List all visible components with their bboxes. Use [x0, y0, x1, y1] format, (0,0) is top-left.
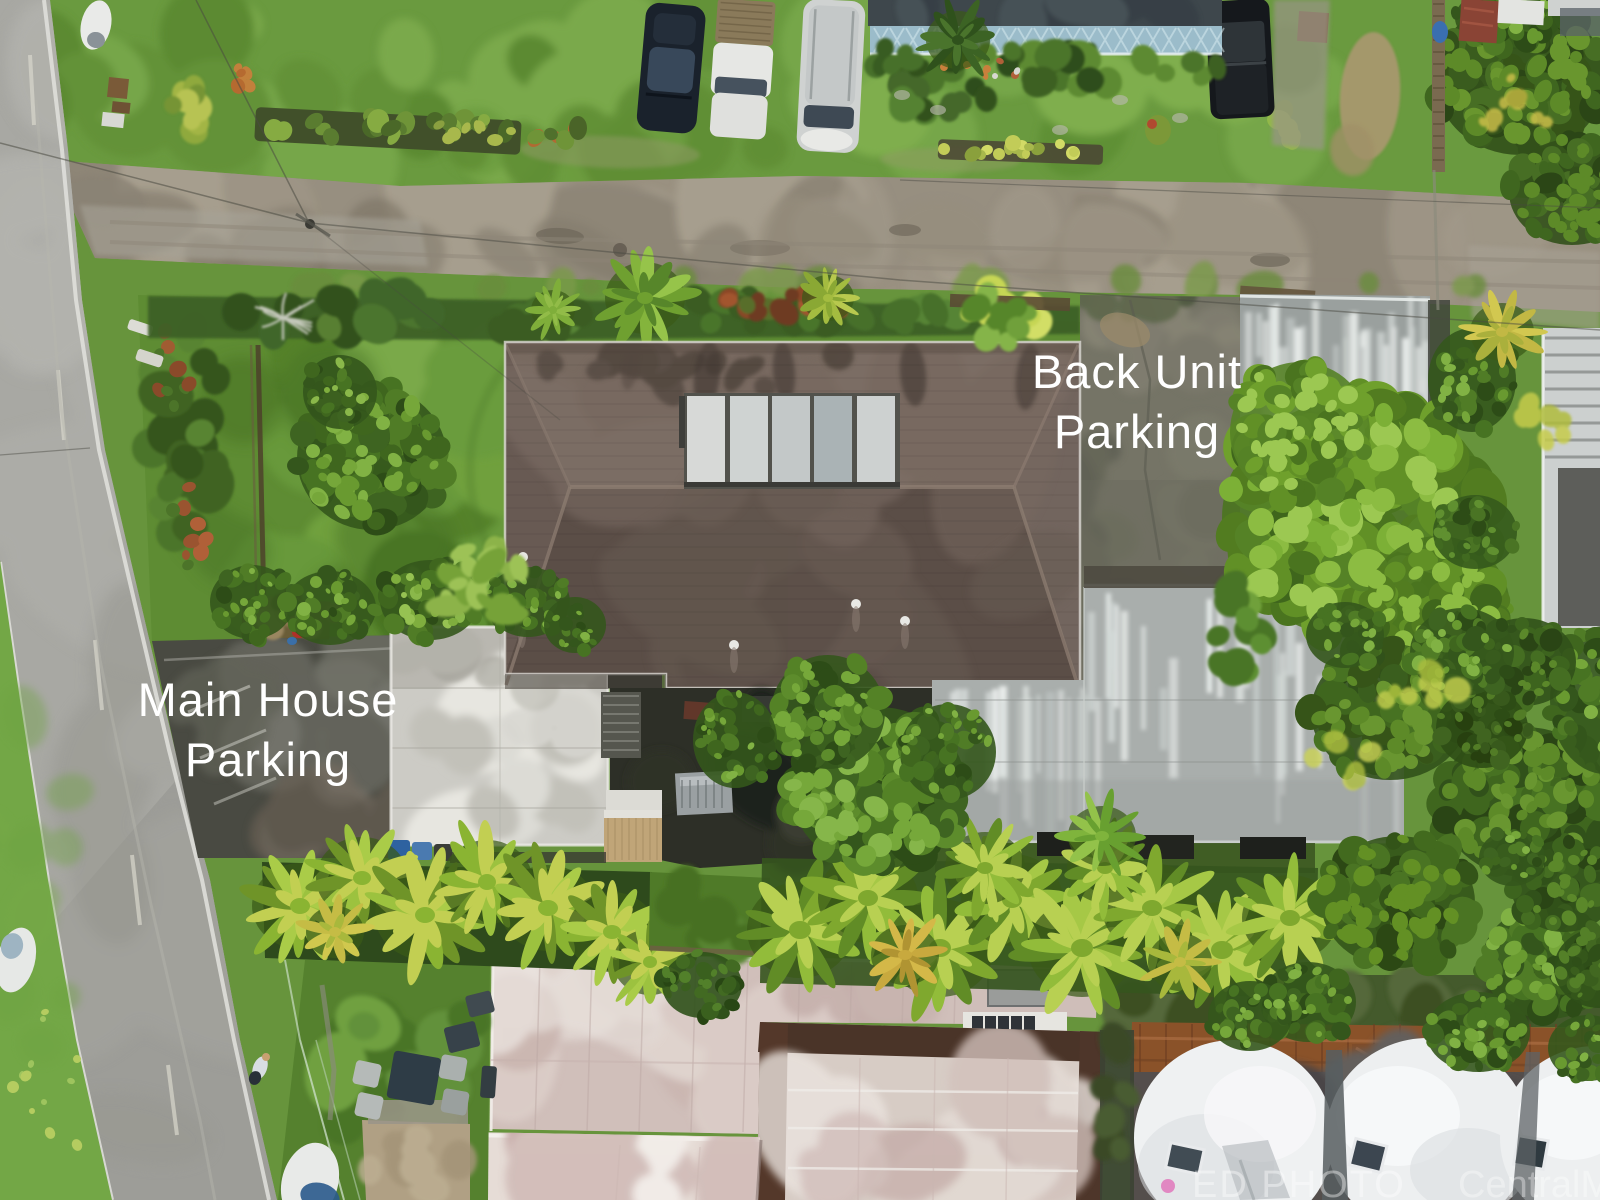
svg-text:Back Unit: Back Unit — [1032, 345, 1242, 398]
svg-text:ED PHOTO: ED PHOTO — [1192, 1164, 1406, 1200]
svg-text:Parking: Parking — [1054, 405, 1220, 458]
svg-text:CentralML: CentralML — [1458, 1164, 1600, 1200]
svg-text:Parking: Parking — [185, 733, 351, 786]
svg-text:Main House: Main House — [138, 673, 399, 726]
